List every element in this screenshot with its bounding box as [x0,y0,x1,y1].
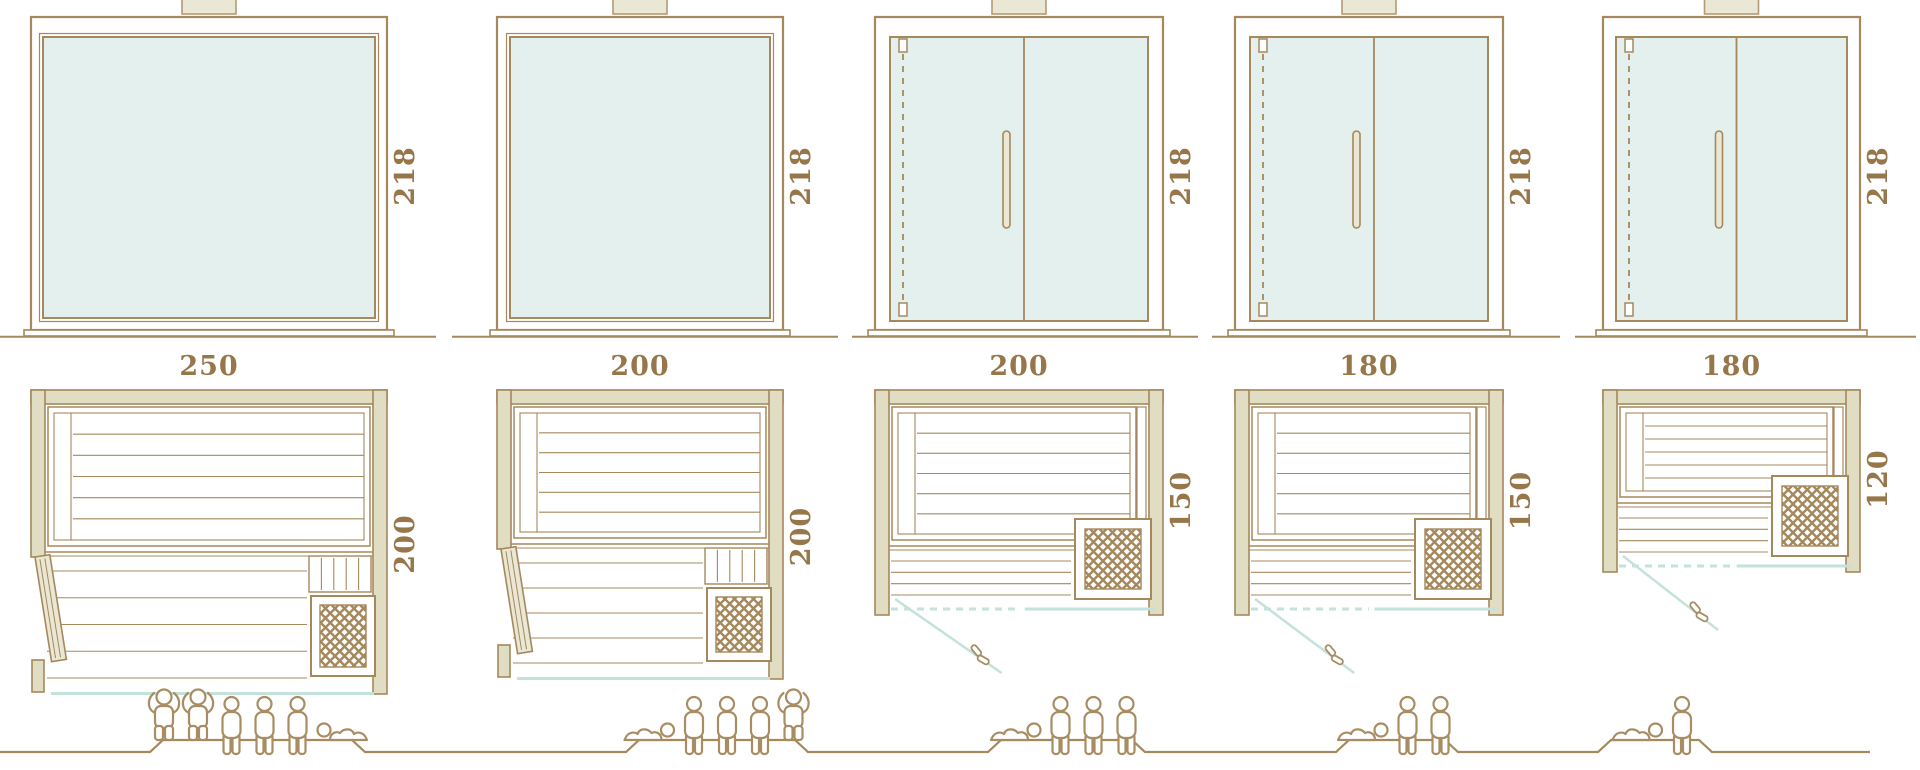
heater-lattice [1782,486,1838,546]
elevation-model-180x150: 218180 [1212,0,1560,382]
left-wall [497,390,511,549]
sitting-person-icon [718,697,736,754]
ground-profile-line [0,740,1870,752]
door-pull-icon [977,655,990,666]
hinge-top [899,39,907,52]
floor-plan-model-200x200: 200 [497,390,817,679]
glass-panel [43,37,375,318]
depth-dimension: 150 [1506,471,1537,530]
left-wall [1235,390,1249,615]
sill [1228,330,1510,336]
back-wall [875,390,1163,404]
roof-vent-tab [613,0,667,14]
depth-dimension: 120 [1863,449,1894,508]
sitting-person-icon [1085,697,1103,754]
width-dimension: 200 [989,351,1048,382]
depth-dimension: 200 [390,514,421,573]
height-dimension: 218 [1863,146,1894,205]
depth-dimension: 150 [1166,471,1197,530]
sill [24,330,394,336]
people-group-2 [1613,697,1692,754]
back-wall [1603,390,1860,404]
people-group-3 [1338,697,1450,754]
door-pull-icon [1695,612,1708,623]
lying-person-icon [318,724,368,741]
roof-vent-tab [1705,0,1759,14]
sill [868,330,1170,336]
people-group-5 [625,690,809,755]
capacity-strip [0,690,1870,755]
width-dimension: 200 [610,351,669,382]
standing-person-icon [778,690,808,741]
sitting-person-icon [1399,697,1417,754]
elevation-model-200x200: 218200 [452,0,838,382]
elevation-model-180x120: 218180 [1575,0,1916,382]
back-wall [31,390,387,404]
hinge-top [1625,39,1633,52]
hinge-top [1259,39,1267,52]
width-dimension: 180 [1339,351,1398,382]
door-handle [1716,131,1723,228]
door-jamb [32,660,44,692]
people-group-6 [149,690,367,755]
door-jamb [498,645,510,677]
sill [490,330,790,336]
lying-person-icon [625,724,675,741]
floor-plan-model-250x200: 200 [31,390,421,694]
heater-lattice [1425,529,1481,589]
height-dimension: 218 [390,146,421,205]
hinge-bottom [899,303,907,316]
standing-person-icon [183,690,213,741]
floor-plan-model-180x150: 150 [1235,390,1537,673]
left-wall [1603,390,1617,572]
door-pull-icon [1331,655,1344,666]
roof-vent-tab [1342,0,1396,14]
glass-door-pair [1250,37,1488,321]
door-handle [1003,131,1010,228]
elevation-model-250x200: 218250 [0,0,436,382]
heater-lattice [716,597,762,652]
floor-plan-model-180x120: 120 [1603,390,1894,630]
sitting-person-icon [289,697,307,754]
roof-vent-tab [182,0,236,14]
heater-lattice [1085,529,1141,589]
diagram-stage: 2182502182002182002181802181802002001501… [0,0,1920,770]
roof-vent-tab [992,0,1046,14]
sitting-person-icon [223,697,241,754]
sitting-person-icon [1118,697,1136,754]
glass-door-pair [1616,37,1847,321]
depth-dimension: 200 [786,507,817,566]
door-handle [1353,131,1360,228]
left-wall [31,390,45,557]
sill [1596,330,1867,336]
width-dimension: 180 [1702,351,1761,382]
hinge-bottom [1259,303,1267,316]
lying-person-icon [1613,724,1663,741]
height-dimension: 218 [1506,146,1537,205]
people-group-4 [991,697,1136,754]
back-wall [1235,390,1503,404]
glass-panel [510,37,770,318]
lying-person-icon [991,724,1041,741]
sauna-lineup-diagram: 2182502182002182002181802181802002001501… [0,0,1920,770]
left-wall [875,390,889,615]
width-dimension: 250 [179,351,238,382]
hinge-bottom [1625,303,1633,316]
height-dimension: 218 [786,146,817,205]
sitting-person-icon [1052,697,1070,754]
elevation-model-200x150: 218200 [852,0,1198,382]
back-wall [497,390,783,404]
step-slats [705,548,767,584]
lying-person-icon [1338,724,1388,741]
standing-person-icon [149,690,179,741]
floor-plan-model-200x150: 150 [875,390,1197,673]
sitting-person-icon [1432,697,1450,754]
height-dimension: 218 [1166,146,1197,205]
sitting-person-icon [751,697,769,754]
sitting-person-icon [256,697,274,754]
glass-door-pair [890,37,1148,321]
heater-lattice [320,605,366,667]
step-slats [309,556,371,592]
sitting-person-icon [685,697,703,754]
sitting-person-icon [1673,697,1691,754]
